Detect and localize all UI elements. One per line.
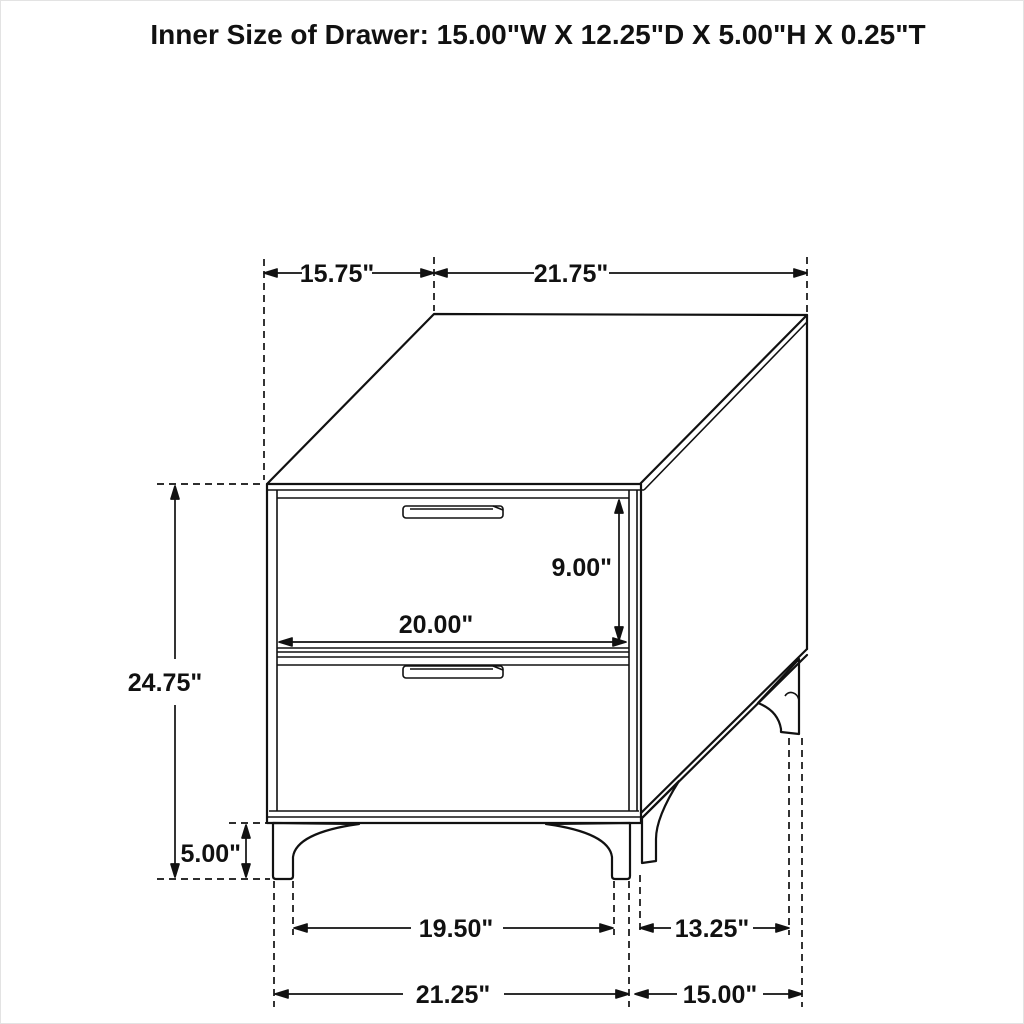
front-left-leg [273, 823, 359, 879]
drawer-2-handle-bar [403, 666, 503, 678]
extension-lines [157, 257, 807, 1007]
dim-line-leg-height [242, 825, 250, 877]
dim-label-drawer-height: 9.00" [551, 554, 612, 582]
drawer-1-handle [403, 506, 503, 518]
dim-label-drawer-width: 20.00" [399, 611, 473, 639]
dim-label-top-width: 21.75" [534, 260, 608, 288]
face-frame [267, 490, 641, 817]
top-slab-edges [267, 322, 807, 490]
dim-label-overall-height: 24.75" [128, 669, 202, 697]
side-bottom-rail [641, 649, 807, 819]
drawer-1-handle-bar [403, 506, 503, 518]
dim-label-top-depth: 15.75" [300, 260, 374, 288]
front-face [267, 484, 641, 823]
extension-lines-top [264, 257, 807, 480]
page-title: Inner Size of Drawer: 15.00"W X 12.25"D … [150, 19, 925, 50]
dim-line-drawer-width [279, 638, 626, 646]
dim-label-side-leg-span: 13.25" [675, 915, 749, 943]
dim-line-drawer-height [615, 500, 623, 640]
dim-label-base-depth: 15.00" [683, 981, 757, 1009]
top-face [267, 314, 807, 484]
nightstand-drawing [267, 314, 807, 879]
drawer-2-handle [403, 666, 503, 678]
dim-label-base-width: 21.25" [416, 981, 490, 1009]
nightstand-dimension-drawing: Inner Size of Drawer: 15.00"W X 12.25"D … [1, 1, 1024, 1024]
dim-label-leg-height: 5.00" [180, 840, 241, 868]
dimension-diagram-page: Inner Size of Drawer: 15.00"W X 12.25"D … [0, 0, 1024, 1024]
dimension-annotations: 15.75" 21.75" 24.75" 5.00" 9.00" 20.00" … [128, 260, 807, 1009]
dim-line-top-width [434, 269, 807, 277]
extension-lines-side [789, 738, 802, 1007]
dim-label-front-leg-span: 19.50" [419, 915, 493, 943]
front-right-leg [546, 823, 630, 879]
